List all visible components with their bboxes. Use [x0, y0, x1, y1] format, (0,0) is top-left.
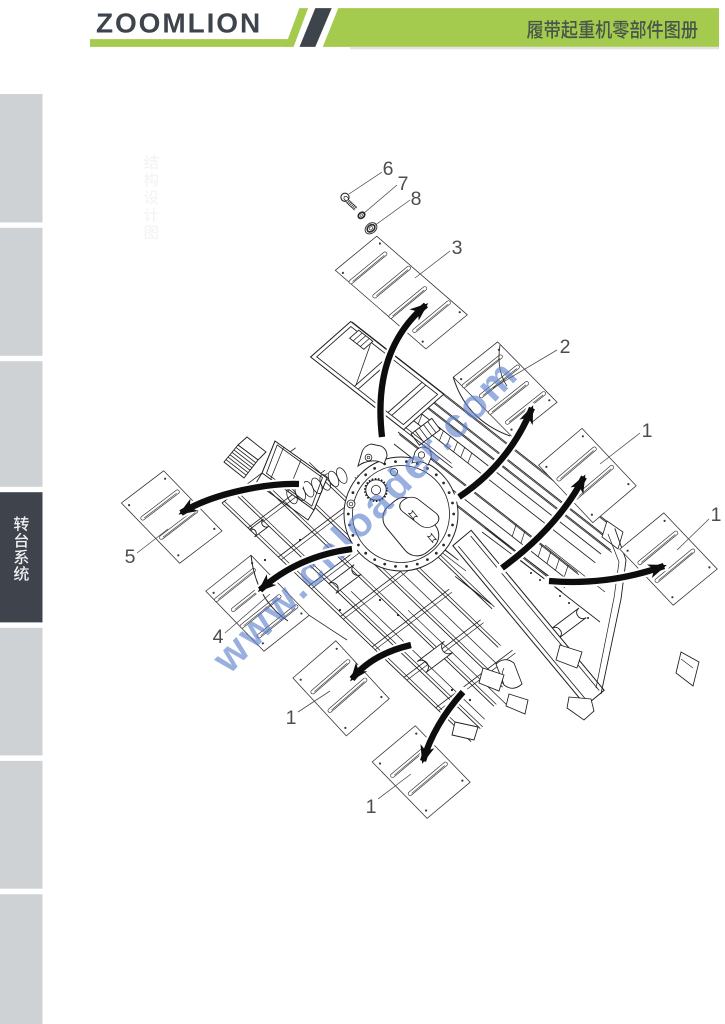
- svg-text:1: 1: [642, 420, 653, 442]
- svg-text:ZOOMLION: ZOOMLION: [96, 8, 262, 39]
- svg-text:1: 1: [711, 504, 722, 526]
- svg-text:1: 1: [366, 796, 377, 818]
- svg-text:4: 4: [213, 626, 224, 648]
- svg-text:8: 8: [411, 188, 422, 210]
- svg-text:6: 6: [383, 158, 394, 180]
- svg-text:3: 3: [452, 237, 463, 259]
- svg-text:1: 1: [286, 707, 297, 729]
- svg-text:7: 7: [398, 173, 409, 195]
- svg-text:2: 2: [560, 336, 571, 358]
- svg-text:5: 5: [125, 546, 136, 568]
